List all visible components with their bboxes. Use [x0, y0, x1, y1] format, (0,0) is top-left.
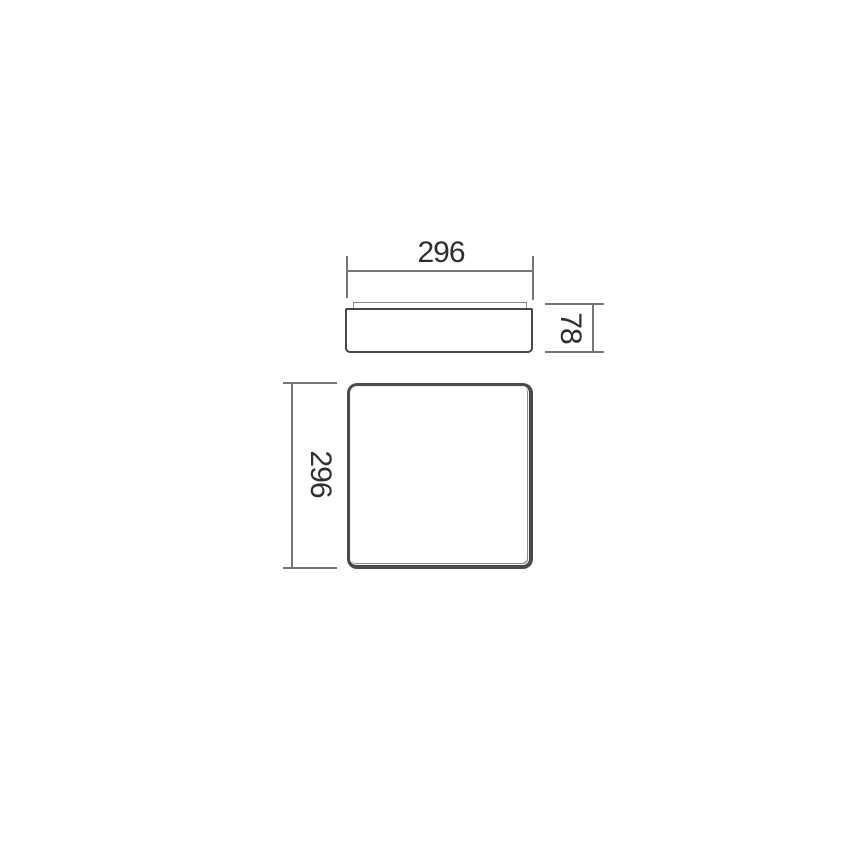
fixture-plan-outline: [347, 383, 533, 569]
plan-dimension-line: [291, 382, 293, 569]
technical-drawing-canvas: 296 78 296: [0, 0, 868, 868]
plan-dimension-label: 296: [303, 450, 337, 497]
plan-view: 296: [0, 0, 868, 868]
